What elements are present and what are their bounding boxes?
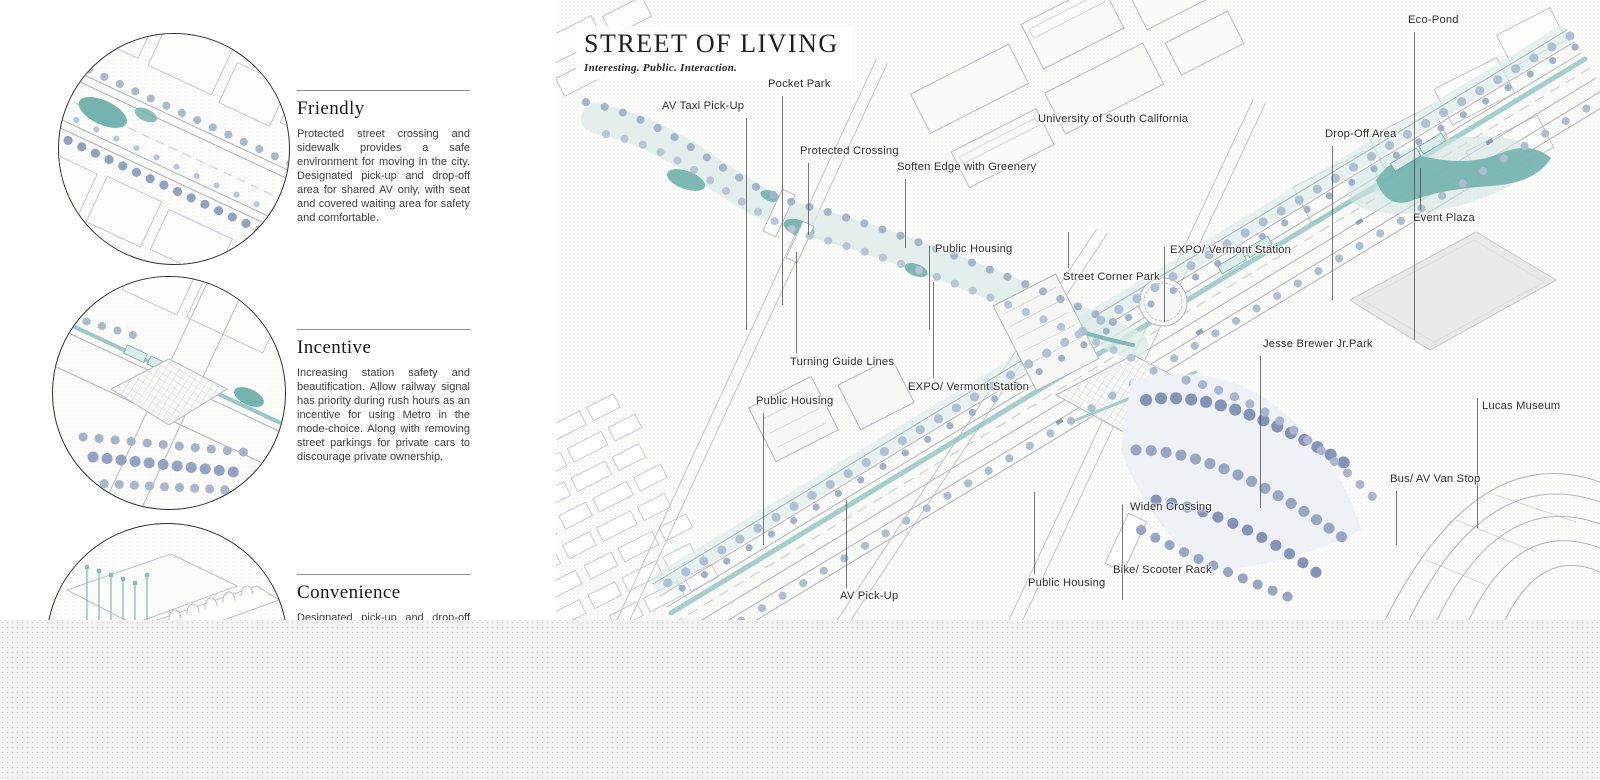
map-area: STREET OF LIVING Interesting. Public. In…: [556, 0, 1600, 622]
section-title: Incentive: [297, 337, 470, 359]
leader-line: [929, 246, 930, 330]
map-labels-layer: AV Taxi Pick-UpPocket ParkProtected Cros…: [556, 0, 1600, 622]
section-rule: [297, 90, 470, 91]
map-label: Widen Crossing: [1130, 501, 1212, 513]
leader-line: [1477, 398, 1478, 528]
bottom-paper-texture: [0, 620, 1600, 780]
leader-line: [1034, 492, 1035, 574]
section-body: Increasing station safety and beautifica…: [297, 366, 470, 464]
leader-line: [1332, 146, 1333, 300]
section-body: Protected street crossing and sidewalk p…: [297, 127, 470, 225]
map-label: Drop-Off Area: [1325, 128, 1396, 140]
map-label: AV Pick-Up: [840, 590, 898, 602]
map-label: Bike/ Scooter Rack: [1113, 564, 1212, 576]
leader-line: [1122, 505, 1123, 600]
leader-line: [808, 163, 809, 235]
leader-line: [763, 413, 764, 545]
section-rule: [297, 329, 470, 330]
map-label: Eco-Pond: [1408, 14, 1459, 26]
map-label: Protected Crossing: [800, 145, 899, 157]
vignette-circle-friendly: [58, 33, 290, 265]
leader-line: [1260, 356, 1261, 508]
leader-line: [846, 500, 847, 588]
leader-line: [905, 179, 906, 248]
leader-line: [796, 252, 797, 353]
leader-line: [1068, 232, 1069, 268]
section-friendly: Friendly Protected street crossing and s…: [297, 90, 470, 225]
section-title: Convenience: [297, 582, 470, 604]
leader-line: [1420, 168, 1421, 210]
leader-line: [1414, 32, 1415, 340]
map-label: Street Corner Park: [1063, 271, 1160, 283]
left-panel: Friendly Protected street crossing and s…: [0, 0, 556, 622]
section-title: Friendly: [297, 98, 470, 120]
section-incentive: Incentive Increasing station safety and …: [297, 329, 470, 464]
presentation-board: STREET OF LIVING Interesting. Public. In…: [0, 0, 1600, 780]
map-label: Lucas Museum: [1482, 400, 1560, 412]
leader-line: [1396, 491, 1397, 545]
leader-line: [1164, 247, 1165, 322]
leader-line: [782, 96, 783, 305]
map-label: Public Housing: [935, 243, 1012, 255]
map-label: Turning Guide Lines: [790, 356, 894, 368]
map-label: Public Housing: [756, 395, 833, 407]
map-label: University of South California: [1038, 113, 1188, 125]
leader-line: [933, 282, 934, 378]
map-label: Event Plaza: [1413, 212, 1475, 224]
section-rule: [297, 574, 470, 575]
map-label: AV Taxi Pick-Up: [662, 100, 744, 112]
map-label: Pocket Park: [768, 78, 831, 90]
map-label: Bus/ AV Van Stop: [1390, 473, 1480, 485]
map-label: EXPO/ Vermont Station: [1170, 244, 1291, 256]
leader-line: [746, 118, 747, 330]
map-label: Public Housing: [1028, 577, 1105, 589]
map-label: EXPO/ Vermont Station: [908, 381, 1029, 393]
map-label: Jesse Brewer Jr.Park: [1263, 338, 1373, 350]
map-label: Soften Edge with Greenery: [897, 161, 1036, 173]
vignette-circle-incentive: [52, 276, 286, 510]
